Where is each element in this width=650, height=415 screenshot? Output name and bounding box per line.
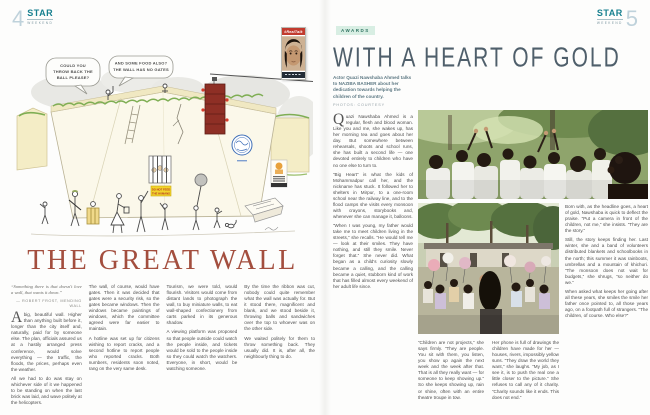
right-column-2a: “Children are not projects,” she says fi…	[418, 340, 484, 410]
realtalk-label: #RealTalk	[282, 28, 305, 35]
brand-sub-label: WEEKEND	[27, 21, 53, 25]
brand-logo: STAR	[597, 9, 623, 18]
right-column-3: Born with, as the headline goes, a heart…	[565, 204, 648, 410]
paragraph: A hotline was set up for citizens wishin…	[89, 336, 160, 372]
paragraph: By the time the ribbon was cut, nobody c…	[244, 284, 315, 333]
epigraph-attribution: — ROBERT FROST, MENDING WALL	[11, 299, 82, 309]
right-column-1: Quazi Nawshaba Ahmed is a regular, flesh…	[333, 114, 413, 410]
realtalk-badge: #RealTalk	[281, 27, 306, 80]
paragraph: “Children are not projects,” she says fi…	[418, 340, 484, 401]
badge-caption-bar	[282, 72, 305, 78]
standfirst: Actor Quazi Nawshaba Ahmed talks to NAZI…	[333, 75, 416, 100]
right-column-2b: Her phone is full of drawings the childr…	[492, 340, 559, 410]
svg-text:THROW BACK THE: THROW BACK THE	[53, 69, 93, 74]
right-article-headline: WITH A HEART OF GOLD	[333, 43, 649, 74]
paragraph: We waited politely for them to throw som…	[244, 336, 315, 360]
sign-line-2: THE HUMANS	[152, 192, 170, 196]
photo-children-balloons	[418, 203, 559, 334]
left-article-body: “Something there is that doesn't love a …	[11, 284, 315, 410]
cartoonist-signature	[265, 227, 278, 230]
page-number-left: 4	[12, 9, 24, 29]
masthead-right: STAR WEEKEND 5	[597, 9, 638, 29]
brand-rule	[27, 19, 53, 20]
paragraph: “Big Heart” is what the kids of Mohammad…	[333, 172, 413, 221]
great-wall-cartoon: DO NOT FEED THE HUMANS	[13, 48, 313, 246]
paragraph: Her phone is full of drawings the childr…	[492, 340, 559, 401]
dropcap-q: Q	[333, 114, 346, 126]
masthead-left: 4 STAR WEEKEND	[12, 9, 53, 29]
sign-line-1: DO NOT FEED	[152, 188, 170, 192]
ground-line	[31, 231, 295, 236]
wall-poster	[271, 160, 287, 187]
brand-sub-label: WEEKEND	[597, 21, 623, 25]
paragraph: Tourism, we were told, would flourish. V…	[167, 284, 238, 326]
paragraph: The wall, of course, would have gates. T…	[89, 284, 160, 333]
paragraph: Born with, as the headline goes, a heart…	[565, 204, 648, 234]
paragraph: Quazi Nawshaba Ahmed is a regular, flesh…	[333, 114, 413, 169]
section-tag: AWARDS	[336, 26, 375, 35]
paragraph: A viewing platform was proposed so that …	[167, 329, 238, 371]
epigraph: “Something there is that doesn't love a …	[11, 284, 82, 296]
brand-logo: STAR	[27, 9, 53, 18]
page-number-right: 5	[626, 9, 638, 29]
paragraph: “When I was young, my father would take …	[333, 223, 413, 290]
left-column-1: “Something there is that doesn't love a …	[11, 284, 82, 410]
left-column-4: By the time the ribbon was cut, nobody c…	[244, 284, 315, 410]
left-article-headline: THE GREAT WALL	[0, 245, 325, 277]
brand-rule	[597, 19, 623, 20]
paragraph: A big, beautiful wall. Higher than anyth…	[11, 312, 82, 373]
paragraph: All we had to do was stay on whichever s…	[11, 376, 82, 406]
wall-window: DO NOT FEED THE HUMANS	[149, 156, 171, 196]
left-column-3: Tourism, we were told, would flourish. V…	[167, 284, 238, 410]
paragraph: When asked what keeps her going after al…	[565, 289, 648, 319]
svg-text:COULD YOU: COULD YOU	[60, 63, 86, 68]
svg-text:THE WALL HAS NO GATES: THE WALL HAS NO GATES	[113, 67, 169, 72]
photo-children-crowd	[418, 110, 648, 199]
svg-text:AND SOME FOOD ALSO?: AND SOME FOOD ALSO?	[115, 61, 168, 66]
columnist-photo	[282, 35, 305, 72]
paragraph: Still, the story keeps finding her. Last…	[565, 237, 648, 286]
dropcap-a: A	[11, 312, 24, 324]
left-column-2: The wall, of course, would have gates. T…	[89, 284, 160, 410]
svg-text:BALL PLEASE?: BALL PLEASE?	[57, 75, 90, 80]
photo-credit: PHOTOS: COURTESY	[333, 103, 385, 107]
page-fold	[319, 0, 331, 415]
